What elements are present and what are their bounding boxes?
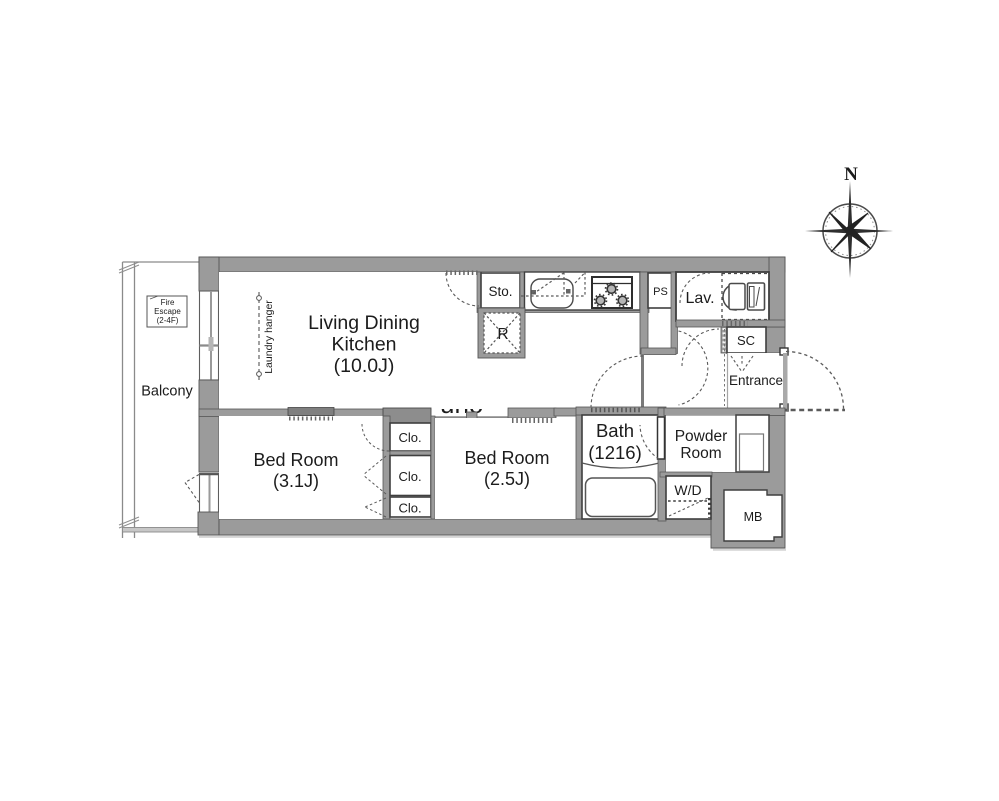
- svg-text:Clo.: Clo.: [398, 430, 421, 445]
- svg-text:(3.1J): (3.1J): [273, 471, 319, 491]
- svg-text:Entrance: Entrance: [729, 373, 783, 388]
- svg-text:Laundry hanger: Laundry hanger: [263, 300, 275, 374]
- svg-text:N: N: [844, 164, 858, 185]
- svg-text:Powder: Powder: [675, 428, 728, 445]
- svg-text:Clo.: Clo.: [398, 501, 421, 516]
- svg-text:Fire: Fire: [161, 298, 175, 307]
- svg-text:Kitchen: Kitchen: [331, 334, 396, 356]
- svg-text:Escape: Escape: [154, 307, 181, 316]
- svg-text:(2.5J): (2.5J): [484, 469, 530, 489]
- svg-text:Sto.: Sto.: [488, 284, 512, 299]
- svg-text:Lav.: Lav.: [685, 290, 714, 307]
- svg-text:(10.0J): (10.0J): [334, 355, 395, 377]
- svg-text:W/D: W/D: [674, 482, 701, 498]
- svg-text:(2-4F): (2-4F): [157, 316, 179, 325]
- svg-text:PS: PS: [653, 286, 668, 298]
- svg-text:SC: SC: [737, 333, 755, 348]
- svg-text:Clo.: Clo.: [398, 469, 421, 484]
- svg-text:Bath: Bath: [596, 420, 634, 441]
- svg-text:Living Dining: Living Dining: [308, 312, 420, 334]
- svg-text:MB: MB: [744, 510, 763, 524]
- svg-text:Room: Room: [680, 445, 721, 462]
- svg-text:(1216): (1216): [588, 442, 641, 463]
- svg-text:Bed Room: Bed Room: [253, 450, 338, 470]
- svg-text:Balcony: Balcony: [141, 384, 193, 400]
- svg-text:R: R: [497, 326, 508, 343]
- svg-text:Bed Room: Bed Room: [464, 448, 549, 468]
